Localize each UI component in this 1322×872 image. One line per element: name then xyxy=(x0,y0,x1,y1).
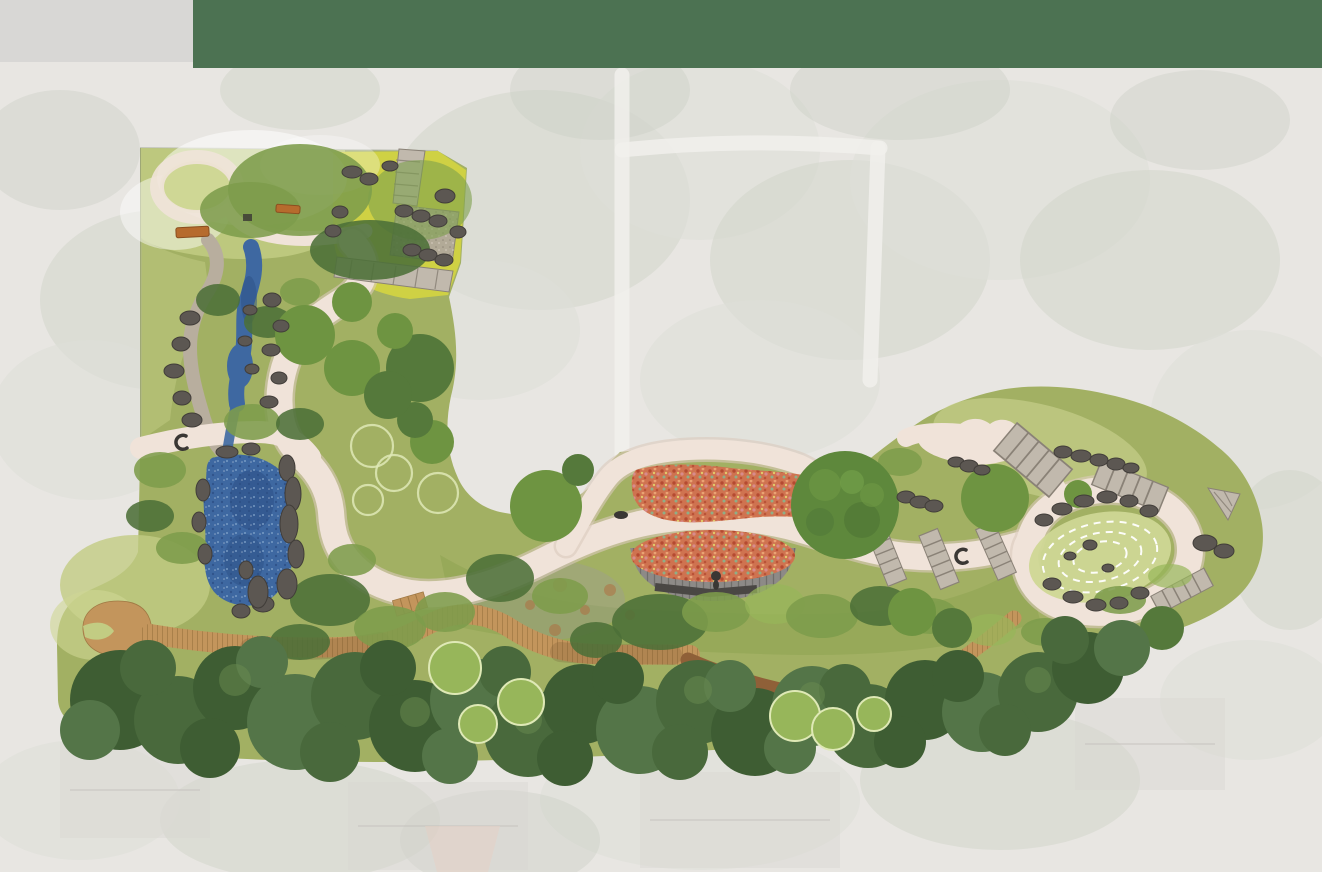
boulder xyxy=(1097,491,1117,503)
boulder xyxy=(403,244,421,256)
boulder xyxy=(1074,495,1094,507)
boulder xyxy=(1086,599,1106,611)
tree xyxy=(364,371,412,419)
boulder xyxy=(360,173,378,185)
aerial-texture-blob xyxy=(640,300,880,460)
tree-texture xyxy=(844,502,880,538)
aerial-road-horizontal xyxy=(622,143,880,150)
ornamental-tree xyxy=(812,708,854,750)
rust-planting-dot xyxy=(549,624,561,636)
boulder xyxy=(1064,552,1076,560)
shrub-mass xyxy=(682,592,750,632)
boulder xyxy=(262,344,280,356)
canopy-tree xyxy=(704,660,756,712)
boulder xyxy=(263,293,281,307)
boulder xyxy=(196,479,210,501)
boulder xyxy=(1131,587,1149,599)
boulder xyxy=(1071,450,1091,462)
shrub-mass xyxy=(328,544,376,576)
boulder xyxy=(1123,463,1139,473)
plan-sheet xyxy=(0,0,1322,872)
boulder xyxy=(182,413,202,427)
canopy-tree xyxy=(120,640,176,696)
boulder xyxy=(450,226,466,238)
boulder xyxy=(435,254,453,266)
boulder xyxy=(280,505,298,543)
canopy-tree xyxy=(684,676,712,704)
tree-texture xyxy=(840,470,864,494)
canopy-tree xyxy=(60,700,120,760)
boulder xyxy=(273,320,289,332)
boulder xyxy=(1140,505,1158,517)
boulder xyxy=(382,161,398,171)
aerial-texture-blob xyxy=(1020,170,1280,350)
litter-bin xyxy=(243,214,252,221)
boulder xyxy=(1120,495,1138,507)
boulder xyxy=(429,215,447,227)
boulder xyxy=(180,311,200,325)
boulder xyxy=(271,372,287,384)
shrub-mass xyxy=(466,554,534,602)
boulder xyxy=(419,249,437,261)
boulder xyxy=(260,396,278,408)
shrub-mass xyxy=(786,594,858,638)
boulder xyxy=(1054,446,1072,458)
boulder xyxy=(325,225,341,237)
boulder xyxy=(342,166,362,178)
boulder xyxy=(172,337,190,351)
boulder xyxy=(395,205,413,217)
canopy-tree xyxy=(652,724,708,780)
boulder xyxy=(164,364,184,378)
shrub-mass xyxy=(415,592,475,632)
canopy-tree xyxy=(400,697,430,727)
canopy-tree xyxy=(219,664,251,696)
landscape-master-plan xyxy=(0,0,1322,872)
shrub-mass xyxy=(126,500,174,532)
boulder xyxy=(1063,591,1083,603)
tree-texture xyxy=(860,483,884,507)
boulder xyxy=(216,446,238,458)
boulder xyxy=(198,544,212,564)
large-specimen-tree xyxy=(791,451,899,559)
boulder xyxy=(1035,514,1053,526)
boulder xyxy=(239,561,253,579)
tree xyxy=(961,464,1029,532)
boulder xyxy=(243,305,257,315)
boulder xyxy=(173,391,191,405)
canopy-tree xyxy=(592,652,644,704)
ornamental-tree xyxy=(498,679,544,725)
shrub-mass xyxy=(224,404,280,440)
tree xyxy=(377,313,413,349)
person-figure xyxy=(711,571,721,581)
person-figure xyxy=(713,580,719,590)
boulder xyxy=(277,569,297,599)
boulder xyxy=(1193,535,1217,551)
rust-planting-dot xyxy=(604,584,616,596)
boulder xyxy=(974,465,990,475)
boulder xyxy=(1090,454,1108,466)
sheet-header xyxy=(0,0,1322,68)
canopy-tree xyxy=(180,718,240,778)
canopy-tree xyxy=(1094,620,1150,676)
shrub-mass xyxy=(1148,564,1192,588)
tree xyxy=(932,608,972,648)
boulder xyxy=(1107,458,1125,470)
aerial-texture-blob xyxy=(1110,70,1290,170)
animal-figure xyxy=(614,511,628,519)
boulder xyxy=(238,336,252,346)
ornamental-tree xyxy=(429,642,481,694)
shrub-mass xyxy=(532,578,588,614)
boulder xyxy=(248,576,268,608)
boulder xyxy=(1083,540,1097,550)
canopy-tree xyxy=(1041,616,1089,664)
boulder xyxy=(1052,503,1072,515)
boulder xyxy=(1043,578,1061,590)
boulder xyxy=(332,206,348,218)
shrub-mass xyxy=(196,284,240,316)
boulder xyxy=(435,189,455,203)
header-band xyxy=(193,0,1322,68)
corner-panel xyxy=(0,0,193,62)
boulder xyxy=(192,512,206,532)
bench xyxy=(176,226,209,238)
tree xyxy=(332,282,372,322)
canopy-tree xyxy=(932,650,984,702)
boulder xyxy=(288,540,304,568)
boulder xyxy=(1214,544,1234,558)
tree-texture xyxy=(809,469,841,501)
canopy-tree xyxy=(979,704,1031,756)
tree-texture xyxy=(806,508,834,536)
boulder xyxy=(925,500,943,512)
canopy-tree xyxy=(360,640,416,696)
tree xyxy=(562,454,594,486)
boulder xyxy=(232,604,250,618)
boulder xyxy=(412,210,430,222)
aerial-road-side xyxy=(870,148,878,380)
tree xyxy=(275,305,335,365)
shrub-mass xyxy=(276,408,324,440)
canopy-tree xyxy=(300,722,360,782)
tree xyxy=(791,451,899,559)
ornamental-tree xyxy=(459,705,497,743)
tree xyxy=(888,588,936,636)
boulder xyxy=(245,364,259,374)
shrub-mass xyxy=(280,278,320,306)
boulder xyxy=(242,443,260,455)
shrub-mass xyxy=(134,452,186,488)
bench xyxy=(276,204,300,214)
boulder xyxy=(1102,564,1114,572)
canopy-tree xyxy=(537,730,593,786)
ornamental-tree xyxy=(857,697,891,731)
canopy-tree xyxy=(1025,667,1051,693)
boulder xyxy=(1110,597,1128,609)
pink-roof xyxy=(425,826,500,872)
